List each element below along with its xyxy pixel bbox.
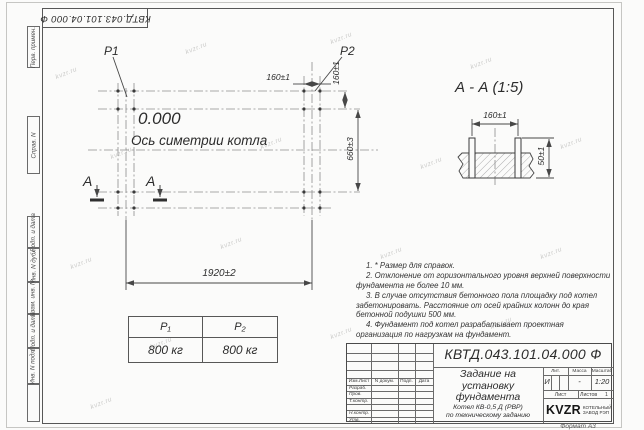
tb-row-utv: Утв.	[349, 418, 360, 423]
company-name-line2: ЗАВОД РЭП	[583, 410, 612, 416]
tb-lit-header: Лит.	[543, 369, 568, 374]
tb-mass-value: -	[568, 377, 591, 386]
drawing-sheet: kvzr.ru kvzr.ru kvzr.ru kvzr.ru kvzr.ru …	[0, 0, 644, 430]
section-view-title: А - А (1:5)	[455, 79, 523, 96]
load-table-header-row: P₁ P₂	[129, 317, 277, 338]
note-1: 1. * Размер для справок.	[356, 261, 612, 271]
note-2: 2. Отклонение от горизонтального уровня …	[356, 271, 612, 291]
company-logo-area: KVZR КОТЕЛЬНЫЙ ЗАВОД РЭП	[544, 399, 611, 421]
tb-col-n-dokum: N докум.	[371, 379, 398, 384]
elevation-mark: 0.000	[138, 109, 181, 129]
tb-row-nkontr: Н.контр.	[349, 411, 369, 416]
load-table-value-p2: 800 кг	[203, 338, 277, 362]
load-table-header-p1: P₁	[129, 317, 203, 338]
load-table-header-p2: P₂	[203, 317, 277, 338]
tb-subtitle-2: по техническому заданию	[435, 412, 541, 419]
tb-col-data: Дата	[415, 379, 433, 384]
tb-scale-value: 1:20	[591, 377, 613, 386]
dim-660: 660±3	[345, 135, 355, 163]
section-letter-a2: А	[146, 173, 155, 189]
tb-row-prov: Пров.	[349, 392, 362, 397]
kvzr-logo-text: KVZR	[546, 403, 581, 417]
tb-sheets-label: Листов	[580, 392, 597, 398]
tb-col-podp: Подп.	[398, 379, 415, 384]
note-4: 4. Фундамент под котел разрабатывает про…	[356, 320, 612, 340]
tb-scale-header: Масштаб	[591, 369, 613, 374]
tb-mass-header: Масса	[568, 369, 591, 374]
title-block: Изм.Лист N докум. Подп. Дата Разраб. Про…	[346, 343, 612, 422]
note-3: 3. В случае отсутствия бетонного пола пл…	[356, 291, 612, 321]
point-p1-label: P1	[104, 44, 119, 58]
anchor-bolt-markers	[116, 89, 321, 209]
section-dim-50: 50±1	[536, 142, 546, 170]
boiler-axis-label: Ось симетрии котла	[131, 133, 267, 148]
dim-160-top: 160±1	[258, 72, 290, 82]
tb-subtitle-1: Котел КВ-0,5 Д (РВР)	[435, 404, 541, 411]
load-table-value-p1: 800 кг	[129, 338, 203, 362]
load-table: P₁ P₂ 800 кг 800 кг	[128, 316, 278, 363]
load-table-value-row: 800 кг 800 кг	[129, 338, 277, 362]
dim-1920: 1920±2	[188, 268, 250, 279]
tb-sheet-label: Лист	[543, 392, 578, 398]
tb-title: Задание на установку фундамента	[435, 369, 541, 404]
tb-row-tkontr: Т.контр.	[349, 399, 368, 404]
point-p2-label: P2	[340, 44, 355, 58]
dim-160-side: 160±1	[331, 59, 341, 87]
format-label: Формат А3	[546, 423, 610, 430]
tb-lit-value: И	[543, 377, 551, 386]
section-cut-marks	[90, 185, 167, 200]
notes-block: 1. * Размер для справок. 2. Отклонение о…	[356, 261, 612, 340]
company-name: КОТЕЛЬНЫЙ ЗАВОД РЭП	[583, 405, 612, 416]
tb-col-izm-list: Изм.Лист	[347, 379, 371, 384]
tb-designation: КВТД.043.101.04.000 Ф	[433, 346, 613, 362]
tb-row-razrab: Разраб.	[349, 386, 366, 391]
tb-sheets-value: 1	[605, 392, 608, 398]
section-dim-160: 160±1	[470, 110, 520, 120]
section-letter-a1: А	[83, 173, 92, 189]
